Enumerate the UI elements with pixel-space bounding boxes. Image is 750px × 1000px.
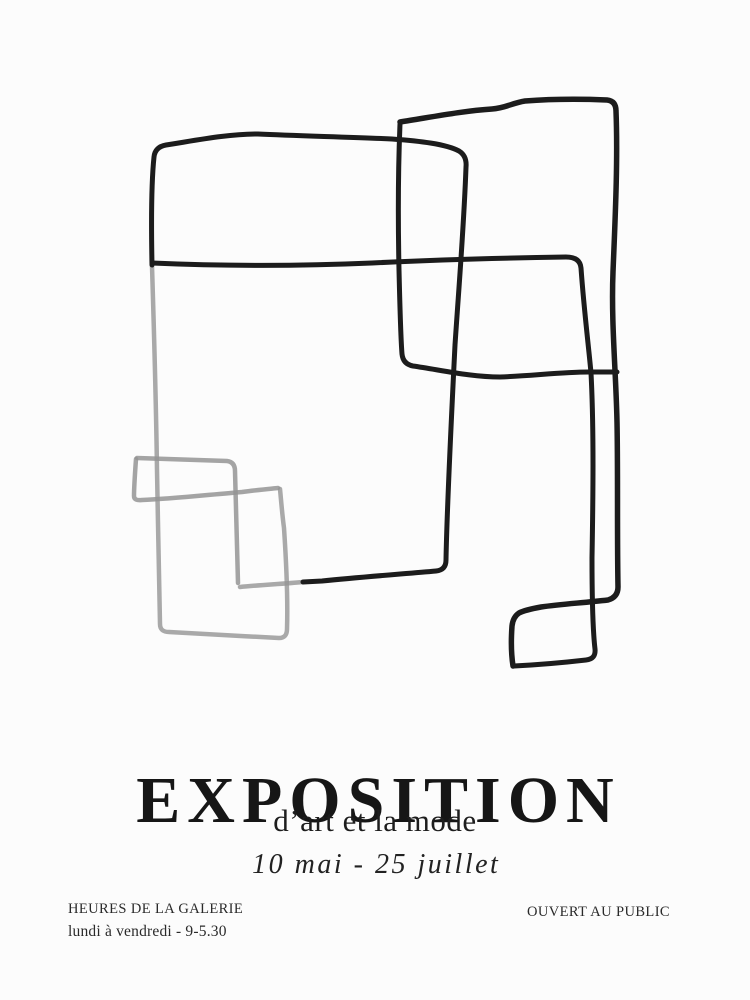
gallery-hours-block: HEURES DE LA GALERIE lundi à vendredi - …	[68, 902, 243, 939]
poster-subtitle: d’art et la mode	[0, 804, 750, 838]
gallery-hours-value: lundi à vendredi - 9-5.30	[68, 924, 243, 940]
exhibition-dates: 10 mai - 25 juillet	[0, 849, 750, 881]
open-to-public-label: OUVERT AU PUBLIC	[527, 905, 670, 920]
exhibition-poster: EXPOSITION d’art et la mode 10 mai - 25 …	[0, 0, 750, 1000]
gallery-hours-label: HEURES DE LA GALERIE	[68, 902, 243, 917]
